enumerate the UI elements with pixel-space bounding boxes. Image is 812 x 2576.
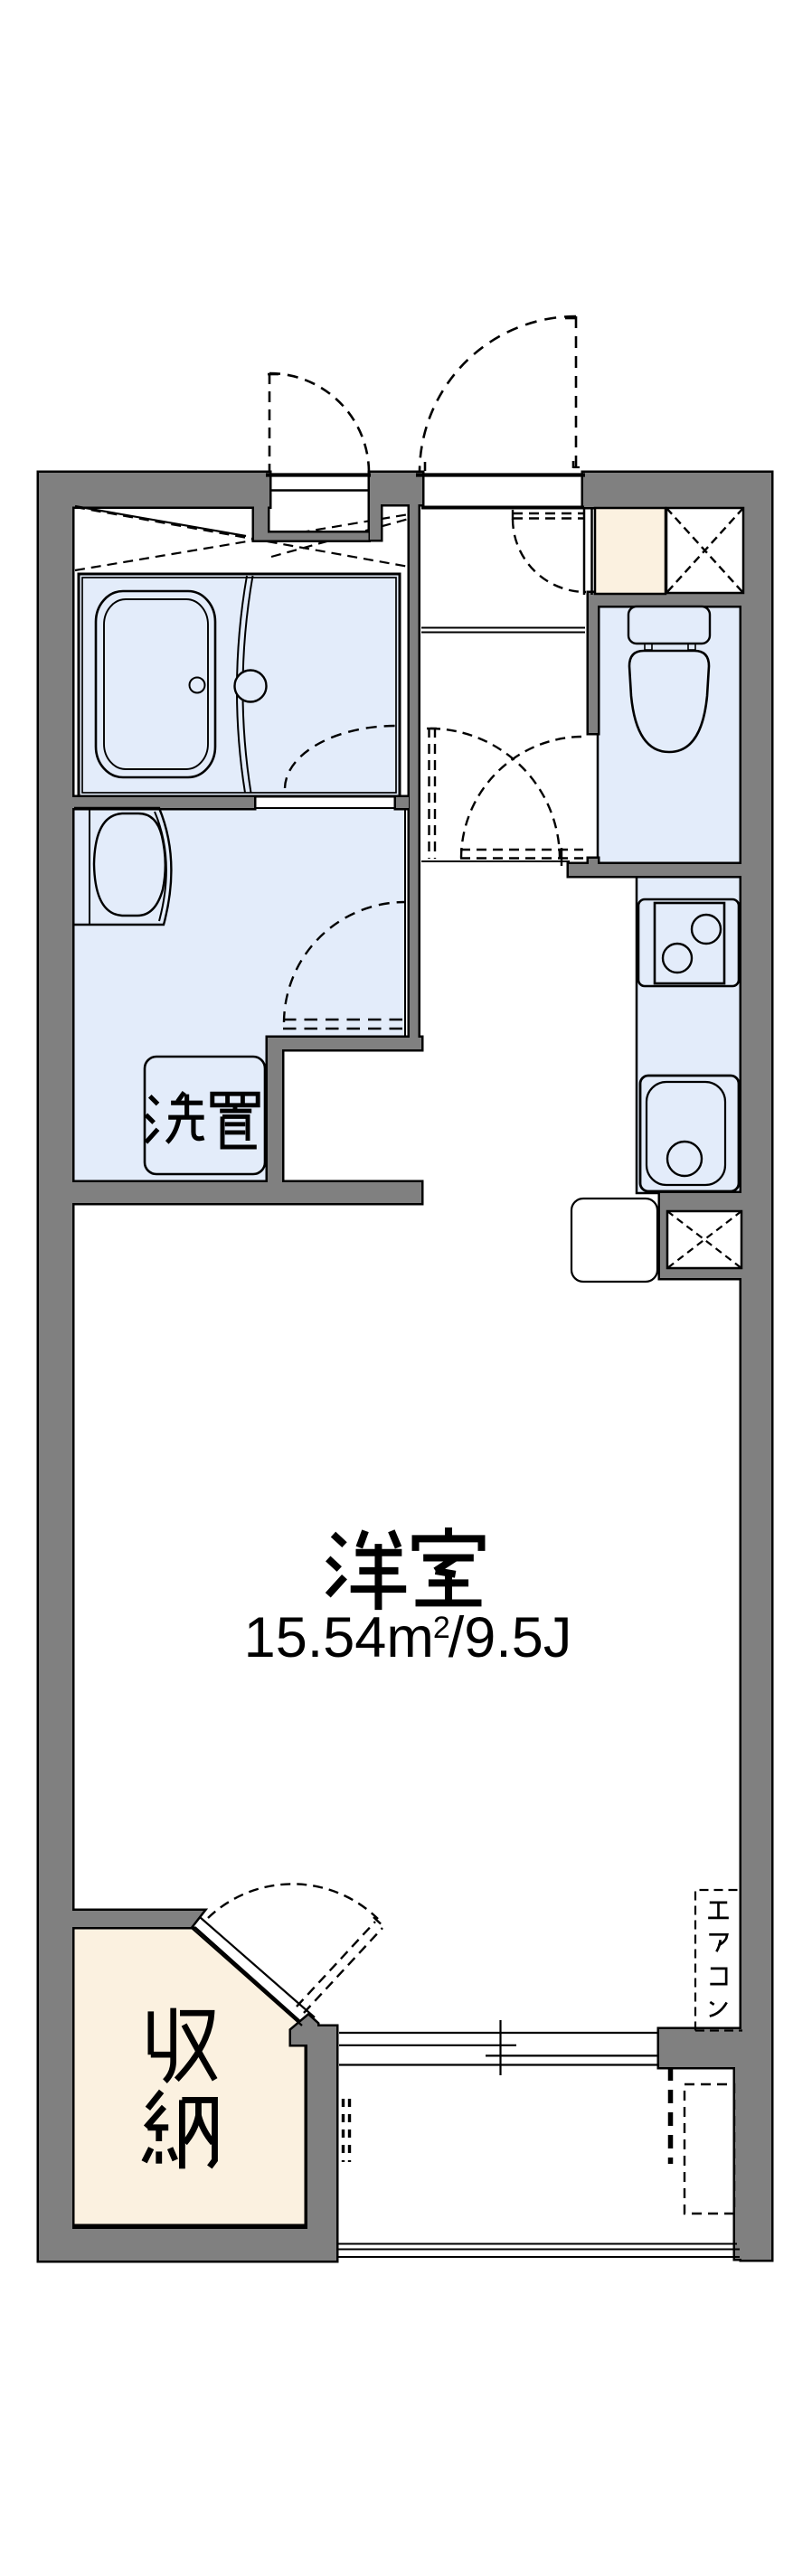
svg-text:15.54m2/9.5J: 15.54m2/9.5J — [244, 1606, 572, 1669]
